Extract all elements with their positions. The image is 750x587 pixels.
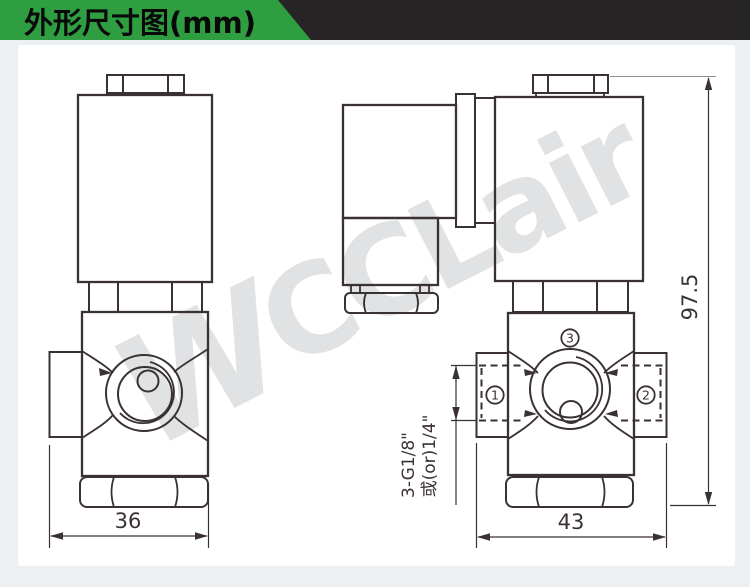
connector-box-lower bbox=[343, 218, 438, 285]
thread-spec-line1: 3-G1/8" bbox=[399, 432, 419, 498]
front-left-port bbox=[50, 352, 83, 437]
side-view: 1 2 3 3-G1/8" 或(or)1/4" 43 bbox=[343, 75, 716, 548]
front-valve-body bbox=[82, 312, 208, 476]
valve-dimension-drawing: 36 bbox=[0, 0, 750, 587]
side-width-dimension-label: 43 bbox=[558, 510, 585, 534]
port-label-2: 2 bbox=[637, 386, 654, 403]
port-label-1: 1 bbox=[486, 386, 503, 403]
height-dimension-label: 97.5 bbox=[678, 274, 702, 321]
cable-gland-nut bbox=[345, 293, 438, 313]
svg-text:1: 1 bbox=[491, 388, 499, 403]
connector-box bbox=[343, 105, 456, 218]
connector-plate-inner bbox=[475, 98, 495, 223]
front-view: 36 bbox=[50, 75, 213, 548]
front-width-dimension: 36 bbox=[50, 445, 209, 548]
connector-plate-outer bbox=[456, 94, 475, 227]
side-cap bbox=[533, 75, 608, 93]
front-bottom-hex bbox=[80, 477, 208, 507]
svg-text:2: 2 bbox=[642, 388, 650, 403]
section-title: 外形尺寸图(mm) bbox=[24, 1, 256, 41]
section-header-bar: 外形尺寸图(mm) bbox=[0, 0, 750, 40]
svg-text:3: 3 bbox=[566, 331, 574, 346]
side-coil-body bbox=[495, 97, 643, 281]
thread-spec-line2: 或(or)1/4" bbox=[420, 415, 440, 498]
side-neck bbox=[513, 281, 628, 312]
side-bottom-hex bbox=[506, 477, 633, 507]
front-neck bbox=[89, 282, 202, 312]
port-label-3: 3 bbox=[561, 329, 578, 346]
thread-dimension: 3-G1/8" 或(or)1/4" bbox=[399, 366, 477, 506]
front-cap bbox=[107, 75, 184, 93]
height-dimension: 97.5 bbox=[610, 77, 716, 506]
front-width-dimension-label: 36 bbox=[115, 509, 142, 533]
front-coil-body bbox=[78, 95, 212, 282]
